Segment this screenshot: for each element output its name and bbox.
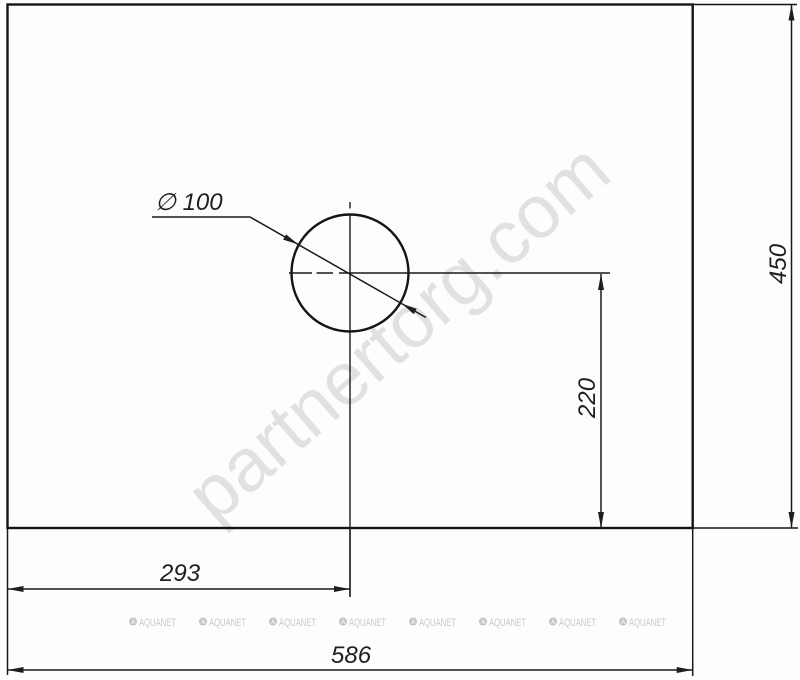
svg-text:586: 586 [331, 642, 372, 669]
svg-text:partnertorg.com: partnertorg.com [170, 126, 625, 537]
svg-text:AQUANET: AQUANET [139, 617, 176, 629]
svg-text:A: A [131, 619, 136, 626]
svg-text:293: 293 [159, 560, 201, 587]
svg-text:220: 220 [574, 377, 601, 419]
svg-text:450: 450 [765, 243, 792, 284]
svg-text:∅ 100: ∅ 100 [155, 189, 223, 216]
